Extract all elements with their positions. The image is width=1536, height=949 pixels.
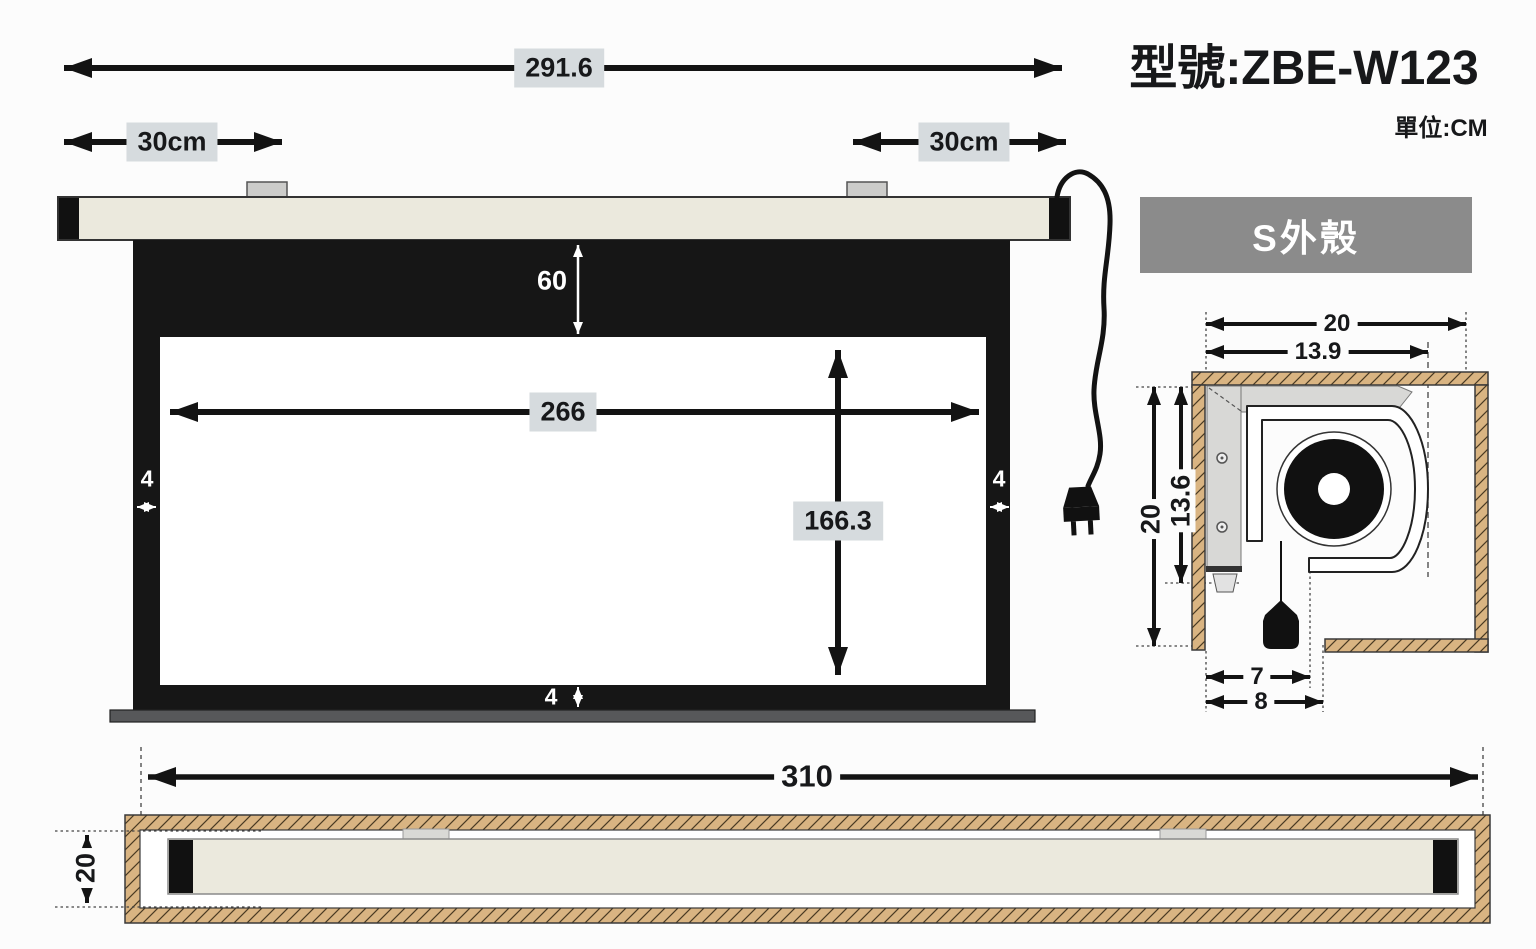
dim-right-border-label: 4 (993, 468, 1006, 491)
plan-casing-endcap-right (1433, 840, 1457, 893)
casing-bar (58, 197, 1070, 240)
plan-casing-bar (168, 839, 1458, 894)
shell-type-badge: S外殼 (1140, 197, 1472, 273)
dim-top-drop-label: 60 (537, 268, 567, 295)
mount-tab-right (847, 182, 887, 197)
model-title: 型號:ZBE-W123 (1129, 45, 1478, 93)
dim-left-offset-label: 30cm (126, 123, 217, 162)
bottom-view (55, 747, 1490, 923)
dim-housing-width-label: 13.9 (1288, 339, 1349, 365)
bracket-foot (1213, 574, 1237, 592)
weight-pendant (1263, 600, 1299, 649)
dim-view-height-label: 166.3 (793, 502, 883, 541)
dim-left-border-label: 4 (141, 468, 154, 491)
dim-right-offset-label: 30cm (918, 123, 1009, 162)
mount-tab-left (247, 182, 287, 197)
dim-slot-width-label: 7 (1243, 664, 1270, 690)
dim-recess-height-label: 20 (1137, 499, 1166, 539)
screen-weight-bar (110, 710, 1035, 722)
power-plug (1062, 486, 1100, 536)
unit-label: 單位:CM (1394, 117, 1487, 141)
dim-bottom-border-label: 4 (545, 686, 558, 709)
shell-type-label: S外殼 (1252, 208, 1360, 262)
dim-total-width-label: 291.6 (514, 49, 604, 88)
casing-endcap-right (1049, 198, 1069, 239)
dim-recess-depth-label: 20 (72, 848, 101, 888)
dim-recess-width-label: 20 (1317, 311, 1358, 337)
dim-view-width-label: 266 (529, 393, 596, 432)
screen-roller (1277, 432, 1391, 546)
dim-housing-height-label: 13.6 (1167, 470, 1196, 533)
casing-endcap-left (59, 198, 79, 239)
drawing-canvas (0, 0, 1536, 949)
dim-recess-length-label: 310 (774, 760, 840, 793)
spec-drawing: 型號:ZBE-W123 單位:CM S外殼 291.6 30cm 30cm 60… (0, 0, 1536, 949)
dim-slot-clearance-label: 8 (1247, 689, 1274, 715)
plan-casing-endcap-left (169, 840, 193, 893)
